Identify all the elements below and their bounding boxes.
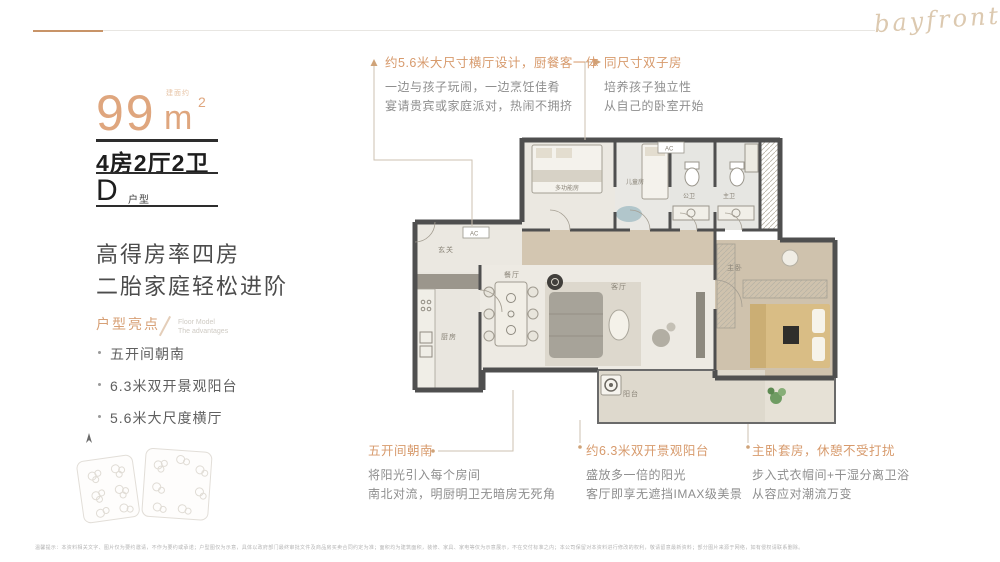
ottoman	[667, 323, 676, 332]
washer-knob	[609, 383, 613, 387]
corridor	[522, 230, 715, 265]
floorplan: AC AC 玄关 厨房 餐厅 客厅 阳台 主卧 多功能房 儿童房 公卫 主卫	[405, 132, 845, 432]
plant	[768, 388, 775, 395]
room-label-entry: 玄关	[438, 245, 454, 254]
highlight-item: 5.6米大尺度横厅	[98, 408, 237, 428]
tv-console	[696, 292, 705, 358]
toilet	[730, 168, 744, 186]
unit-type-letter: D	[96, 174, 118, 208]
annotation-body: 一边与孩子玩闹，一边烹饪佳肴	[385, 78, 599, 97]
room-label-kitchen: 厨房	[441, 332, 457, 341]
divider	[96, 205, 218, 207]
room-label-master: 主卧	[727, 263, 743, 272]
plant	[778, 388, 786, 396]
leader-dot	[746, 445, 750, 449]
ac-label: AC	[665, 147, 674, 153]
north-arrow-icon	[86, 433, 92, 443]
vanity	[718, 206, 754, 220]
pillow	[556, 148, 572, 158]
top-rule	[103, 30, 875, 31]
highlight-item: 6.3米双开景观阳台	[98, 376, 237, 396]
pillow	[812, 309, 825, 333]
annotation-balcony: 约6.3米双开景观阳台 盛放多一倍的阳光 客厅即享无遮挡IMAX级美景	[586, 440, 742, 504]
blanket	[532, 170, 602, 182]
leader-dot	[578, 445, 582, 449]
annotation-body: 从自己的卧室开始	[604, 97, 704, 116]
room-label-dining: 餐厅	[504, 270, 520, 279]
pillow	[536, 148, 552, 158]
pouf	[782, 250, 798, 266]
annotation-hall: 约5.6米大尺寸横厅设计，厨餐客一体 一边与孩子玩闹，一边烹饪佳肴 宴请贵宾或家…	[385, 52, 599, 116]
slash-decoration	[159, 316, 171, 336]
vanity	[673, 206, 709, 220]
annotation-body: 将阳光引入每个房间	[368, 466, 556, 485]
toilet	[685, 168, 699, 186]
room-label-multi: 多功能房	[555, 184, 579, 192]
annotation-title: 主卧套房，休憩不受打扰	[752, 440, 910, 459]
annotation-body: 南北对流，明厨明卫无暗房无死角	[368, 485, 556, 504]
annotation-master-suite: 主卧套房，休憩不受打扰 步入式衣帽间+干湿分离卫浴 从容应对潮流万变	[752, 440, 910, 504]
headline-line1: 高得房率四房	[96, 237, 240, 269]
annotation-body: 步入式衣帽间+干湿分离卫浴	[752, 466, 910, 485]
arrow-up-icon	[371, 59, 378, 66]
annotation-title: 约6.3米双开景观阳台	[586, 440, 742, 459]
disclaimer-text: 温馨提示：本资料相关文字、图片仅为要约邀请，不作为要约或承诺；户型图仅为示意，具…	[35, 544, 985, 551]
counter	[417, 274, 480, 289]
room-label-bath-master: 主卫	[723, 192, 735, 200]
annotation-body: 盛放多一倍的阳光	[586, 466, 742, 485]
poster-page: bayfront 99 建面约 m 2 4房2厅2卫 D 户型 高得房率四房 二…	[0, 0, 1000, 562]
annotation-title: 同尺寸双子房	[604, 52, 704, 71]
annotation-title: 约5.6米大尺寸横厅设计，厨餐客一体	[385, 52, 599, 71]
annotation-body: 宴请贵宾或家庭派对，热闹不拥挤	[385, 97, 599, 116]
annotation-body: 从容应对潮流万变	[752, 485, 910, 504]
divider	[96, 139, 218, 142]
ac-label: AC	[470, 232, 479, 238]
unit-type-suffix: 户型	[128, 191, 150, 206]
sofa	[549, 292, 603, 358]
highlight-item: 五开间朝南	[98, 344, 237, 364]
area-unit: m	[164, 99, 192, 138]
dining-table	[495, 282, 527, 346]
annotation-five-bays: 五开间朝南 将阳光引入每个房间 南北对流，明厨明卫无暗房无死角	[368, 440, 556, 504]
highlights-subtitle-line1: Floor Model	[178, 318, 228, 327]
pillow	[812, 337, 825, 361]
annotation-twin-rooms: 同尺寸双子房 培养孩子独立性 从自己的卧室开始	[604, 52, 704, 116]
wardrobe	[743, 280, 827, 298]
rug	[616, 206, 642, 222]
brand-script-logo: bayfront	[873, 2, 999, 39]
side-table	[547, 274, 563, 290]
site-keyplan	[58, 428, 218, 528]
top-rule-accent	[33, 30, 103, 32]
annotation-body: 客厅即享无遮挡IMAX级美景	[586, 485, 742, 504]
annotation-title: 五开间朝南	[368, 440, 556, 459]
area-note: 建面约	[166, 88, 190, 98]
annotation-body: 培养孩子独立性	[604, 78, 704, 97]
shower	[745, 144, 758, 172]
room-label-living: 客厅	[611, 282, 627, 291]
room-label-balcony: 阳台	[623, 389, 639, 398]
armchair	[652, 329, 670, 347]
closet	[760, 140, 780, 230]
area-value: 99	[96, 84, 156, 142]
blanket	[750, 304, 766, 368]
highlights-list: 五开间朝南 6.3米双开景观阳台 5.6米大尺度横厅	[98, 344, 237, 440]
throw	[783, 326, 799, 344]
area-exponent: 2	[198, 94, 206, 110]
room-label-kids: 儿童房	[626, 178, 644, 186]
highlights-subtitle: Floor Model The advantages	[178, 318, 228, 336]
coffee-table	[609, 310, 629, 340]
headline-line2: 二胎家庭轻松进阶	[96, 269, 288, 301]
highlights-title: 户型亮点	[96, 314, 160, 334]
highlights-subtitle-line2: The advantages	[178, 327, 228, 336]
room-label-bath-public: 公卫	[683, 193, 695, 200]
